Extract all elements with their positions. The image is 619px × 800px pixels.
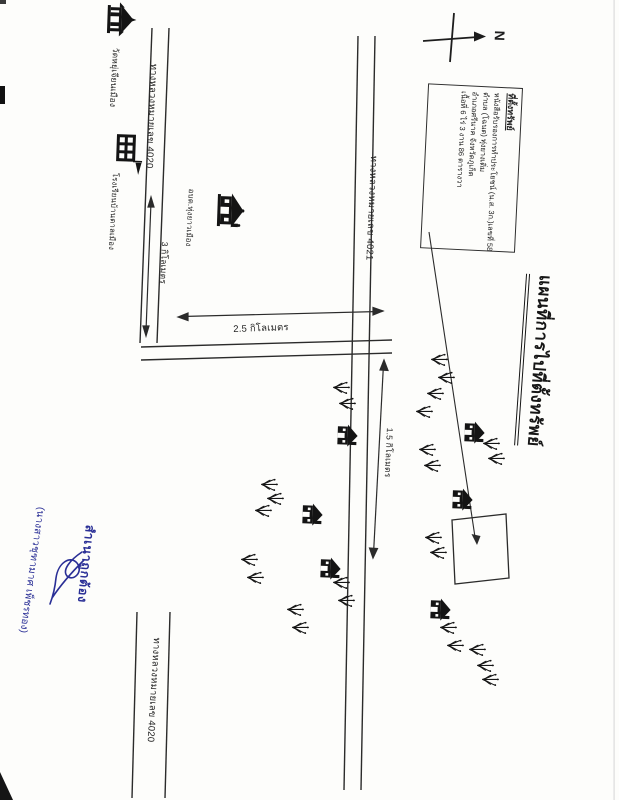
arrow-3km-head-bottom — [143, 326, 149, 336]
sao-office-icon — [217, 193, 245, 228]
tuft-icon — [489, 452, 505, 465]
tree-tufts — [242, 353, 505, 686]
tuft-icon — [420, 443, 436, 456]
arrow-3km-line — [146, 202, 151, 331]
tuft-icon — [426, 531, 442, 544]
tuft-icon — [256, 504, 272, 517]
house-icon — [302, 503, 323, 526]
compass — [423, 13, 486, 62]
roads-lines — [132, 28, 392, 798]
scan-artifact-top-left — [0, 0, 6, 4]
road-horizontal-top-line — [141, 340, 392, 347]
temple-icon — [107, 2, 137, 37]
arrow-2-5km-head-right — [373, 308, 383, 316]
tuft-icon — [248, 571, 264, 584]
scanned-map-page: ทางหลวงหมายเลข 4020 ทางหลวงหมายเลข 4021 … — [0, 0, 619, 800]
property-parcel-square — [452, 514, 509, 584]
house-icon — [464, 421, 485, 444]
tuft-icon — [439, 371, 455, 384]
tuft-icon — [340, 397, 356, 410]
compass-north-label: N — [492, 30, 508, 41]
scan-edge-line — [614, 0, 615, 800]
arrow-1-5km-head-bottom — [370, 548, 378, 558]
tuft-icon — [242, 553, 258, 566]
road-4020-bottom-left-line — [132, 612, 137, 798]
tuft-icon — [431, 546, 447, 559]
school-icon — [116, 134, 143, 175]
tuft-icon — [478, 659, 494, 672]
arrow-3km-head-top — [148, 197, 154, 207]
road-horizontal-bottom-line — [141, 353, 392, 360]
arrow-2-5km-line — [182, 312, 379, 317]
pointer-line — [429, 232, 475, 537]
pointer-arrowhead — [472, 534, 481, 545]
tuft-icon — [262, 478, 278, 491]
house-icon — [452, 488, 473, 511]
road-4021-right-line — [361, 36, 375, 790]
tuft-icon — [334, 381, 350, 394]
distance-label-3km: 3 กิโลเมตร — [156, 241, 172, 284]
tuft-icon — [441, 621, 457, 634]
distance-label-2-5km: 2.5 กิโลเมตร — [233, 320, 289, 337]
property-info-box: ที่ตั้งทรัพย์ หนังสือรับรองการทำประโยชน์… — [420, 83, 523, 252]
tuft-icon — [268, 492, 284, 505]
tuft-icon — [428, 387, 444, 400]
compass-north-arrowhead — [474, 32, 486, 42]
arrow-1-5km-head-top — [380, 360, 388, 371]
compass-vertical-line — [450, 13, 454, 62]
house-icon — [320, 557, 341, 580]
tuft-icon — [470, 643, 486, 656]
house-icon — [337, 424, 358, 447]
tuft-icon — [339, 594, 355, 607]
tuft-icon — [288, 603, 304, 616]
tuft-icon — [484, 437, 500, 450]
arrow-2-5km-head-left — [178, 313, 188, 321]
tuft-icon — [293, 621, 309, 634]
distance-label-1-5km: 1.5 กิโลเมตร — [381, 427, 397, 477]
house-icon — [430, 598, 451, 621]
tuft-icon — [425, 459, 441, 472]
scan-artifact-bottom-left — [0, 772, 13, 800]
tuft-icon — [417, 405, 433, 418]
tuft-icon — [448, 639, 464, 652]
tuft-icon — [483, 673, 499, 686]
scan-artifact-left-edge — [0, 86, 5, 104]
compass-horizontal-line — [423, 37, 478, 41]
road-4020-bottom-right-line — [165, 612, 170, 798]
tuft-icon — [432, 353, 448, 366]
road-4021-left-line — [344, 36, 358, 790]
